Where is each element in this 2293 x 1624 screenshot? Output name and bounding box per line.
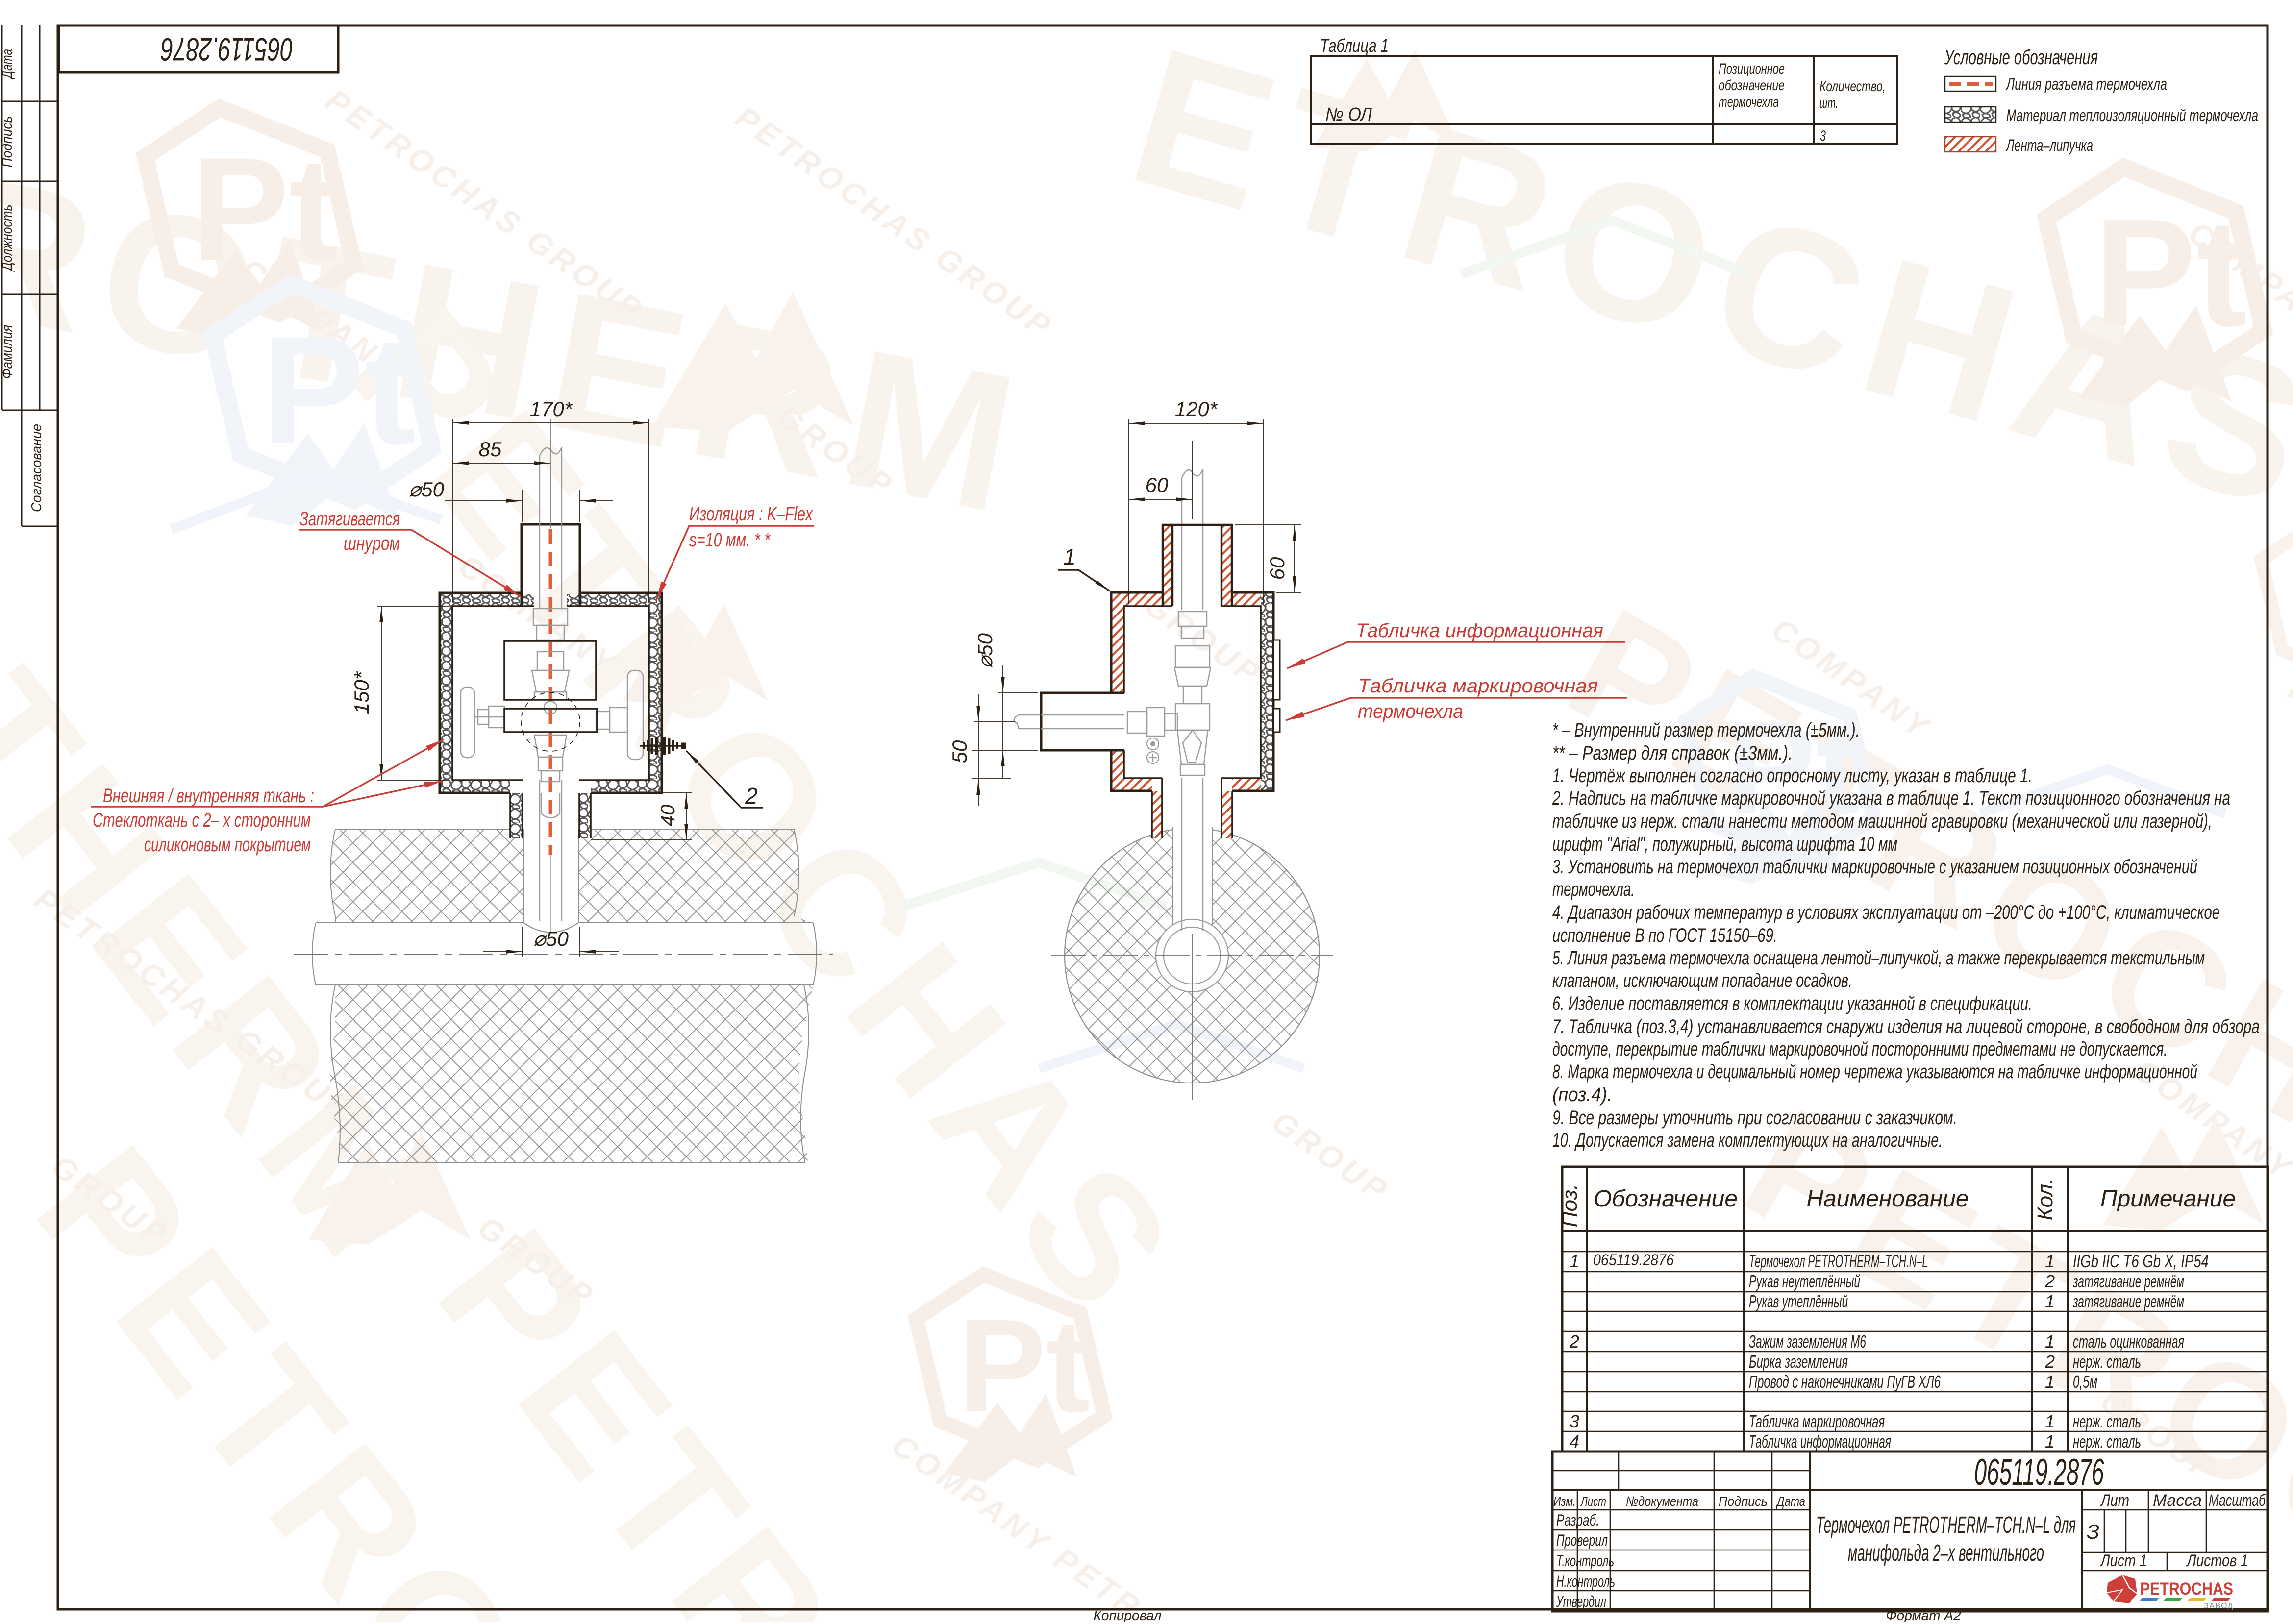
svg-text:3: 3 bbox=[1820, 128, 1826, 144]
svg-text:2: 2 bbox=[2044, 1352, 2055, 1372]
svg-text:№документа: №документа bbox=[1626, 1494, 1698, 1509]
svg-text:8. Марка термочехла и децималь: 8. Марка термочехла и децимальный номер … bbox=[1552, 1061, 2197, 1083]
svg-text:Стеклоткань с 2– х сторонним: Стеклоткань с 2– х сторонним bbox=[93, 810, 311, 831]
svg-text:1: 1 bbox=[2045, 1411, 2055, 1431]
svg-text:Масса: Масса bbox=[2153, 1491, 2202, 1510]
svg-text:⌀50: ⌀50 bbox=[973, 633, 997, 668]
svg-text:Линия разъема термочехла: Линия разъема термочехла bbox=[2006, 75, 2167, 94]
svg-text:Лист: Лист bbox=[1580, 1494, 1606, 1509]
svg-text:Н.контроль: Н.контроль bbox=[1556, 1573, 1615, 1590]
svg-text:065119.2876: 065119.2876 bbox=[1593, 1251, 1674, 1269]
svg-text:термочехла: термочехла bbox=[1719, 94, 1779, 110]
svg-text:манифольда 2–х вентильного: манифольда 2–х вентильного bbox=[1848, 1540, 2044, 1566]
svg-text:З: З bbox=[2087, 1520, 2099, 1543]
svg-text:Таблица 1: Таблица 1 bbox=[1320, 36, 1389, 56]
svg-text:Дата: Дата bbox=[1776, 1494, 1805, 1509]
svg-text:60: 60 bbox=[1146, 473, 1169, 496]
svg-text:шрифт "Arial", полужирный, выс: шрифт "Arial", полужирный, высота шрифта… bbox=[1552, 834, 1897, 855]
svg-text:1: 1 bbox=[2045, 1291, 2055, 1311]
svg-text:Рукав утеплённый: Рукав утеплённый bbox=[1749, 1291, 1848, 1311]
svg-text:Обозначение: Обозначение bbox=[1594, 1186, 1738, 1212]
svg-text:Материал теплоизоляционный тер: Материал теплоизоляционный термочехла bbox=[2006, 106, 2258, 125]
svg-text:Т.контроль: Т.контроль bbox=[1556, 1552, 1614, 1570]
svg-text:Зажим заземления М6: Зажим заземления М6 bbox=[1749, 1331, 1867, 1352]
svg-text:нерж. сталь: нерж. сталь bbox=[2073, 1431, 2141, 1452]
svg-text:шнуром: шнуром bbox=[344, 533, 400, 554]
svg-text:Провод с наконечниками ПуГВ ХЛ: Провод с наконечниками ПуГВ ХЛ6 bbox=[1749, 1372, 1941, 1392]
svg-text:IIGb IIC T6 Gb X, IP54: IIGb IIC T6 Gb X, IP54 bbox=[2073, 1251, 2209, 1271]
svg-text:Фамилия: Фамилия bbox=[0, 325, 15, 379]
svg-text:⌀50: ⌀50 bbox=[533, 927, 569, 950]
svg-text:термочехла: термочехла bbox=[1358, 701, 1463, 722]
svg-text:Количество,: Количество, bbox=[1819, 78, 1886, 95]
svg-text:сталь оцинкованная: сталь оцинкованная bbox=[2073, 1331, 2184, 1352]
svg-text:3. Установить на термочехол та: 3. Установить на термочехол таблички мар… bbox=[1552, 856, 2197, 878]
svg-text:6. Изделие поставляется в комп: 6. Изделие поставляется в комплектации у… bbox=[1552, 993, 2032, 1014]
svg-text:нерж. сталь: нерж. сталь bbox=[2073, 1411, 2141, 1431]
svg-text:PETROCHAS: PETROCHAS bbox=[2140, 1579, 2233, 1599]
svg-text:5. Линия разъема термочехла ос: 5. Линия разъема термочехла оснащена лен… bbox=[1552, 947, 2205, 969]
svg-text:Табличка информационная: Табличка информационная bbox=[1749, 1431, 1891, 1452]
svg-text:s=10 мм. * *: s=10 мм. * * bbox=[689, 529, 771, 551]
svg-text:2: 2 bbox=[745, 783, 758, 809]
svg-text:клапаном, исключающим попадани: клапаном, исключающим попадание осадков. bbox=[1552, 970, 1852, 991]
svg-text:Термочехол PETROTHERM–TCH.N–L: Термочехол PETROTHERM–TCH.N–L bbox=[1749, 1251, 1928, 1271]
svg-text:Табличка информационная: Табличка информационная bbox=[1356, 620, 1603, 641]
svg-text:Лента–липучка: Лента–липучка bbox=[2006, 136, 2093, 155]
svg-text:Дата: Дата bbox=[0, 49, 15, 79]
svg-text:3: 3 bbox=[1570, 1411, 1579, 1431]
svg-text:Наименование: Наименование bbox=[1806, 1186, 1969, 1212]
svg-text:0,5м: 0,5м bbox=[2073, 1372, 2097, 1392]
svg-text:исполнение В по ГОСТ 15150–69.: исполнение В по ГОСТ 15150–69. bbox=[1552, 925, 1777, 946]
svg-text:Формат А2: Формат А2 bbox=[1886, 1608, 1961, 1622]
svg-text:1: 1 bbox=[1570, 1251, 1579, 1271]
svg-text:Кол.: Кол. bbox=[2033, 1178, 2057, 1220]
svg-text:Проверил: Проверил bbox=[1556, 1531, 1608, 1549]
svg-text:065119.2876: 065119.2876 bbox=[1974, 1452, 2104, 1493]
svg-text:Табличка маркировочная: Табличка маркировочная bbox=[1358, 675, 1598, 697]
svg-text:120*: 120* bbox=[1175, 397, 1218, 420]
svg-text:4. Диапазон рабочих температур: 4. Диапазон рабочих температур в условия… bbox=[1552, 902, 2220, 923]
svg-text:** – Размер для справок (±3мм.: ** – Размер для справок (±3мм.). bbox=[1552, 742, 1793, 764]
svg-text:150*: 150* bbox=[350, 671, 373, 714]
svg-text:10. Допускается замена комплек: 10. Допускается замена комплектующих на … bbox=[1552, 1130, 1943, 1151]
svg-text:Поз.: Поз. bbox=[1558, 1184, 1582, 1228]
svg-text:Масштаб: Масштаб bbox=[2209, 1491, 2266, 1510]
svg-text:1: 1 bbox=[2045, 1251, 2055, 1271]
svg-text:2: 2 bbox=[2044, 1271, 2055, 1291]
svg-text:шт.: шт. bbox=[1819, 95, 1838, 111]
svg-text:Затягивается: Затягивается bbox=[299, 508, 400, 530]
svg-text:термочехла.: термочехла. bbox=[1552, 879, 1635, 900]
svg-text:Примечание: Примечание bbox=[2100, 1186, 2236, 1212]
svg-text:Утвердил: Утвердил bbox=[1556, 1593, 1606, 1610]
svg-text:Условные обозначения: Условные обозначения bbox=[1944, 46, 2098, 69]
svg-text:Подпись: Подпись bbox=[0, 116, 15, 168]
svg-text:85: 85 bbox=[479, 438, 502, 461]
svg-text:Изоляция : K–Flex: Изоляция : K–Flex bbox=[689, 503, 813, 525]
svg-text:170*: 170* bbox=[530, 397, 573, 420]
svg-text:Копировал: Копировал bbox=[1093, 1608, 1161, 1622]
svg-text:ЗАВОД: ЗАВОД bbox=[2204, 1602, 2234, 1610]
svg-text:Бирка заземления: Бирка заземления bbox=[1749, 1352, 1848, 1372]
svg-text:Табличка маркировочная: Табличка маркировочная bbox=[1749, 1411, 1885, 1431]
svg-text:1. Чертёж выполнен согласно оп: 1. Чертёж выполнен согласно опросному ли… bbox=[1552, 765, 2032, 787]
svg-text:Изм.: Изм. bbox=[1553, 1494, 1576, 1509]
svg-text:нерж. сталь: нерж. сталь bbox=[2073, 1352, 2141, 1372]
svg-text:обозначение: обозначение bbox=[1719, 77, 1785, 94]
svg-text:Рукав неутеплённый: Рукав неутеплённый bbox=[1749, 1271, 1860, 1291]
svg-text:Термочехол PETROTHERM–TCH.N–L: Термочехол PETROTHERM–TCH.N–L для bbox=[1816, 1512, 2076, 1538]
svg-text:1: 1 bbox=[2045, 1372, 2055, 1392]
svg-text:табличке из нерж. стали нанест: табличке из нерж. стали нанести методом … bbox=[1552, 811, 2212, 832]
svg-text:доступе, перекрытие таблички м: доступе, перекрытие таблички маркировочн… bbox=[1552, 1038, 2168, 1060]
svg-text:2. Надпись на табличке маркиро: 2. Надпись на табличке маркировочной ука… bbox=[1552, 787, 2230, 809]
svg-text:1: 1 bbox=[2045, 1431, 2055, 1452]
svg-text:9. Все размеры уточнить при со: 9. Все размеры уточнить при согласовании… bbox=[1552, 1107, 1957, 1129]
svg-text:50: 50 bbox=[948, 740, 971, 763]
svg-text:Согласование: Согласование bbox=[29, 424, 45, 512]
svg-text:Лит: Лит bbox=[2100, 1491, 2129, 1510]
svg-text:4: 4 bbox=[1570, 1431, 1579, 1452]
svg-text:2: 2 bbox=[1569, 1331, 1579, 1352]
svg-text:(поз.4).: (поз.4). bbox=[1552, 1084, 1612, 1106]
svg-text:60: 60 bbox=[1266, 557, 1289, 580]
svg-text:⌀50: ⌀50 bbox=[409, 478, 445, 501]
svg-text:1: 1 bbox=[1063, 544, 1076, 569]
svg-text:1: 1 bbox=[2045, 1331, 2055, 1352]
svg-text:затягивание ремнём: затягивание ремнём bbox=[2072, 1271, 2184, 1291]
svg-text:Подпись: Подпись bbox=[1719, 1494, 1768, 1509]
svg-text:затягивание ремнём: затягивание ремнём bbox=[2072, 1291, 2184, 1311]
svg-text:силиконовым покрытием: силиконовым покрытием bbox=[144, 834, 311, 856]
svg-text:065119.2876: 065119.2876 bbox=[161, 31, 293, 68]
svg-text:40: 40 bbox=[657, 805, 679, 827]
svg-text:7. Табличка (поз.3,4) устанавл: 7. Табличка (поз.3,4) устанавливается сн… bbox=[1552, 1016, 2260, 1037]
svg-text:* – Внутренний размер термочех: * – Внутренний размер термочехла (±5мм.)… bbox=[1552, 719, 1860, 741]
svg-text:Должность: Должность bbox=[0, 205, 15, 272]
svg-text:№ ОЛ: № ОЛ bbox=[1325, 104, 1372, 125]
svg-text:Внешняя / внутренняя ткань :: Внешняя / внутренняя ткань : bbox=[103, 785, 314, 807]
svg-text:Листов 1: Листов 1 bbox=[2186, 1551, 2248, 1570]
svg-text:Лист 1: Лист 1 bbox=[2100, 1551, 2147, 1570]
svg-text:Разраб.: Разраб. bbox=[1556, 1511, 1599, 1529]
svg-text:Позиционное: Позиционное bbox=[1719, 61, 1785, 77]
